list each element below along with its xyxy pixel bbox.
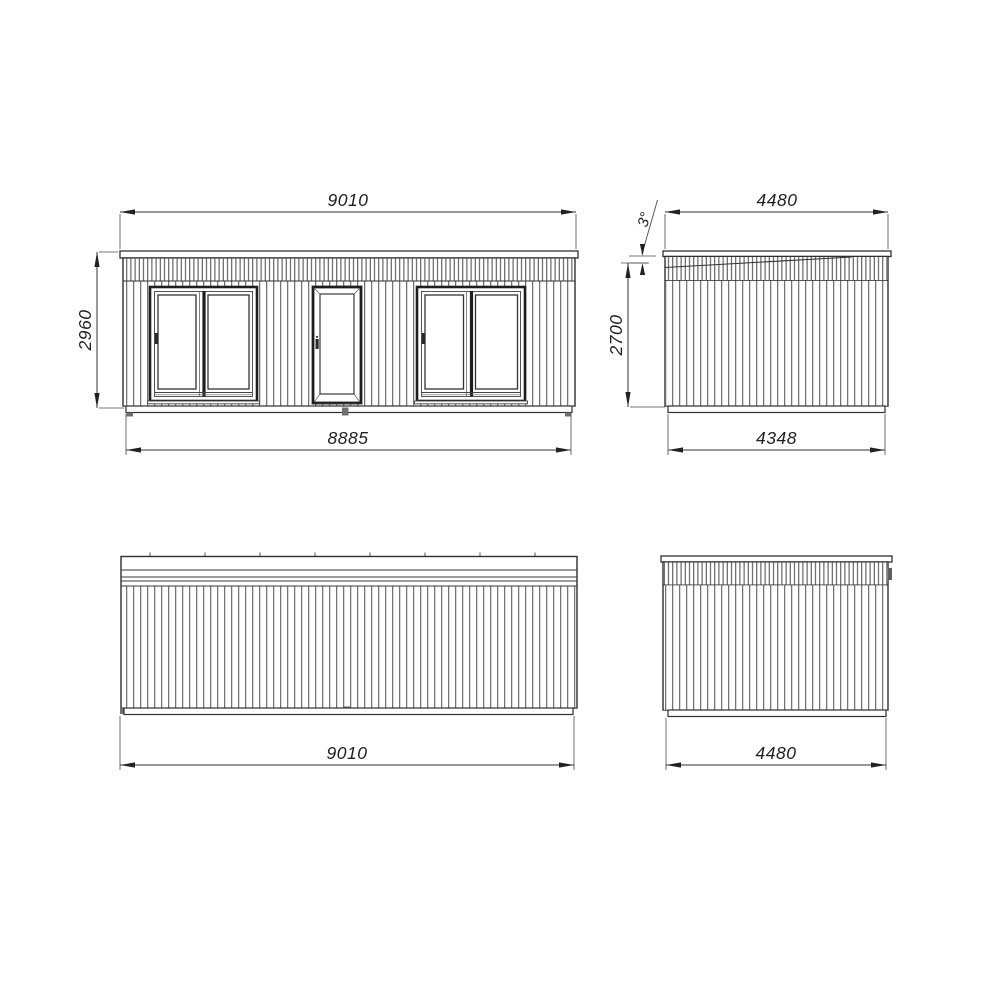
side-left-cladding [664,585,887,710]
window-handle [422,333,426,344]
arrowhead [126,447,141,452]
left-side-elevation-view: 4480 [661,556,892,770]
front-foot-center [342,408,349,416]
dim-front-height [94,252,124,408]
door-handle [316,339,319,349]
front-elevation-view: 9010 2960 8885 [75,190,578,455]
dim-label-side-left-width-bottom: 4480 [756,743,797,763]
arrowhead [120,762,135,767]
front-base [126,406,572,413]
dim-front-width-top [120,209,576,249]
arrowhead [665,209,680,214]
arrowhead [871,762,886,767]
arrowhead [640,263,645,275]
front-window-right [415,287,528,404]
front-foot-left [127,413,134,417]
side-right-base [668,406,885,413]
right-side-elevation-view: 4480 3° 2700 4348 [606,190,891,455]
dim-label-front-height: 2960 [75,310,95,352]
window-sill [415,401,528,404]
dim-side-right-height [625,263,665,407]
window-sill [148,401,260,404]
side-right-cladding [666,281,887,406]
dim-label-rear-width-bottom: 9010 [327,743,368,763]
front-foot-right [565,413,572,417]
arrowhead [625,263,630,278]
side-left-fascia [661,556,892,562]
front-fascia [120,251,578,258]
arrowhead [556,447,571,452]
front-window-left [148,287,260,404]
dim-label-side-right-width-bottom: 4348 [756,428,797,448]
side-left-base [668,710,886,717]
arrowhead [870,447,885,452]
arrowhead [559,762,574,767]
arrowhead [120,209,135,214]
side-right-fascia [663,251,891,257]
front-batten-band [124,259,574,281]
front-door [313,287,361,404]
dim-label-side-right-height: 2700 [606,315,626,357]
arrowhead [625,392,630,407]
arrowhead [640,244,645,256]
arrowhead [666,762,681,767]
arrowhead [668,447,683,452]
rear-base [124,708,573,715]
arrowhead [561,209,576,214]
side-right-batten-band [666,257,887,280]
elevation-drawing-sheet: 9010 2960 8885 [0,0,1000,1000]
arrowhead [94,252,99,267]
rear-cladding [122,587,576,708]
dim-label-front-width-top: 9010 [328,190,369,210]
dim-label-side-right-width-top: 4480 [757,190,798,210]
side-left-corner-bracket [888,568,893,580]
roof-angle-label: 3° [635,211,655,229]
drawing-svg: 9010 2960 8885 [0,0,1000,1000]
arrowhead [94,393,99,408]
dim-side-right-width-top [665,209,888,249]
side-left-batten-band [664,563,887,586]
rear-elevation-view: 9010 [120,553,577,771]
window-handle [155,333,159,344]
arrowhead [873,209,888,214]
dim-label-front-width-bottom: 8885 [328,428,369,448]
